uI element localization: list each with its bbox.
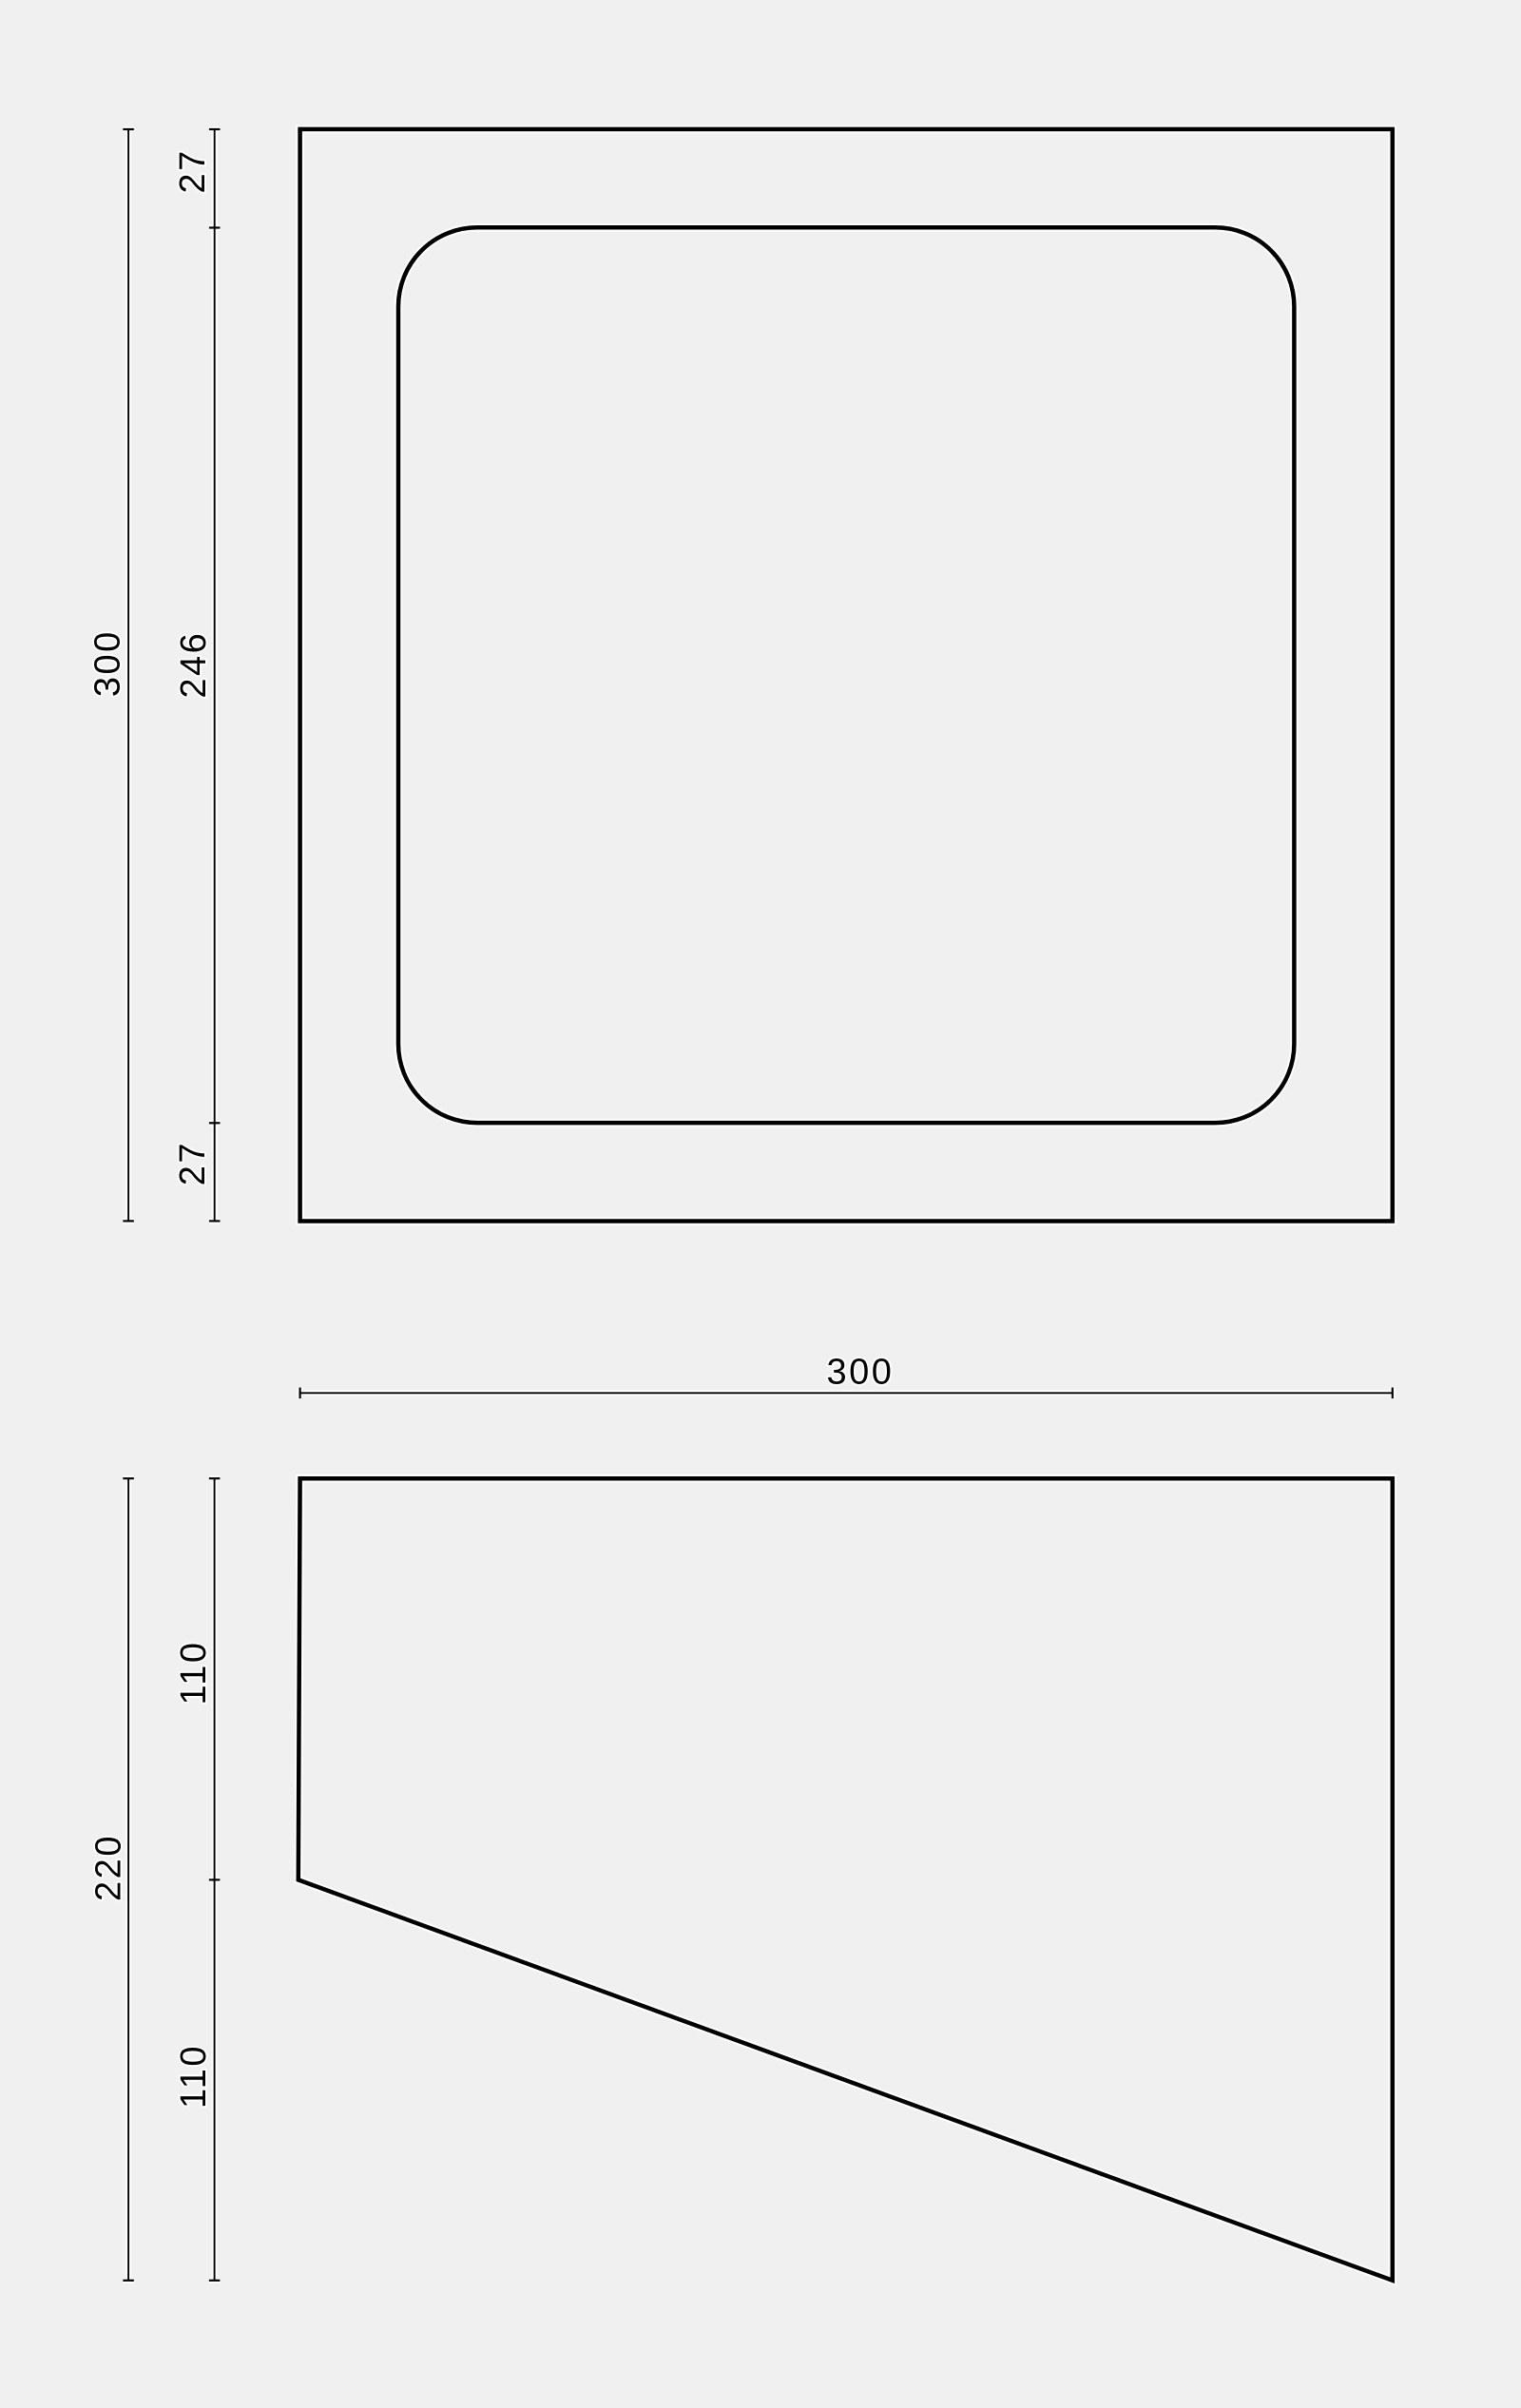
svg-text:110: 110 bbox=[174, 2044, 214, 2109]
svg-text:27: 27 bbox=[173, 1141, 213, 1185]
svg-text:27: 27 bbox=[173, 148, 213, 193]
svg-text:110: 110 bbox=[174, 1640, 214, 1705]
svg-text:220: 220 bbox=[88, 1834, 128, 1901]
svg-text:300: 300 bbox=[87, 629, 127, 697]
svg-text:246: 246 bbox=[174, 631, 214, 699]
svg-text:300: 300 bbox=[826, 1353, 894, 1393]
